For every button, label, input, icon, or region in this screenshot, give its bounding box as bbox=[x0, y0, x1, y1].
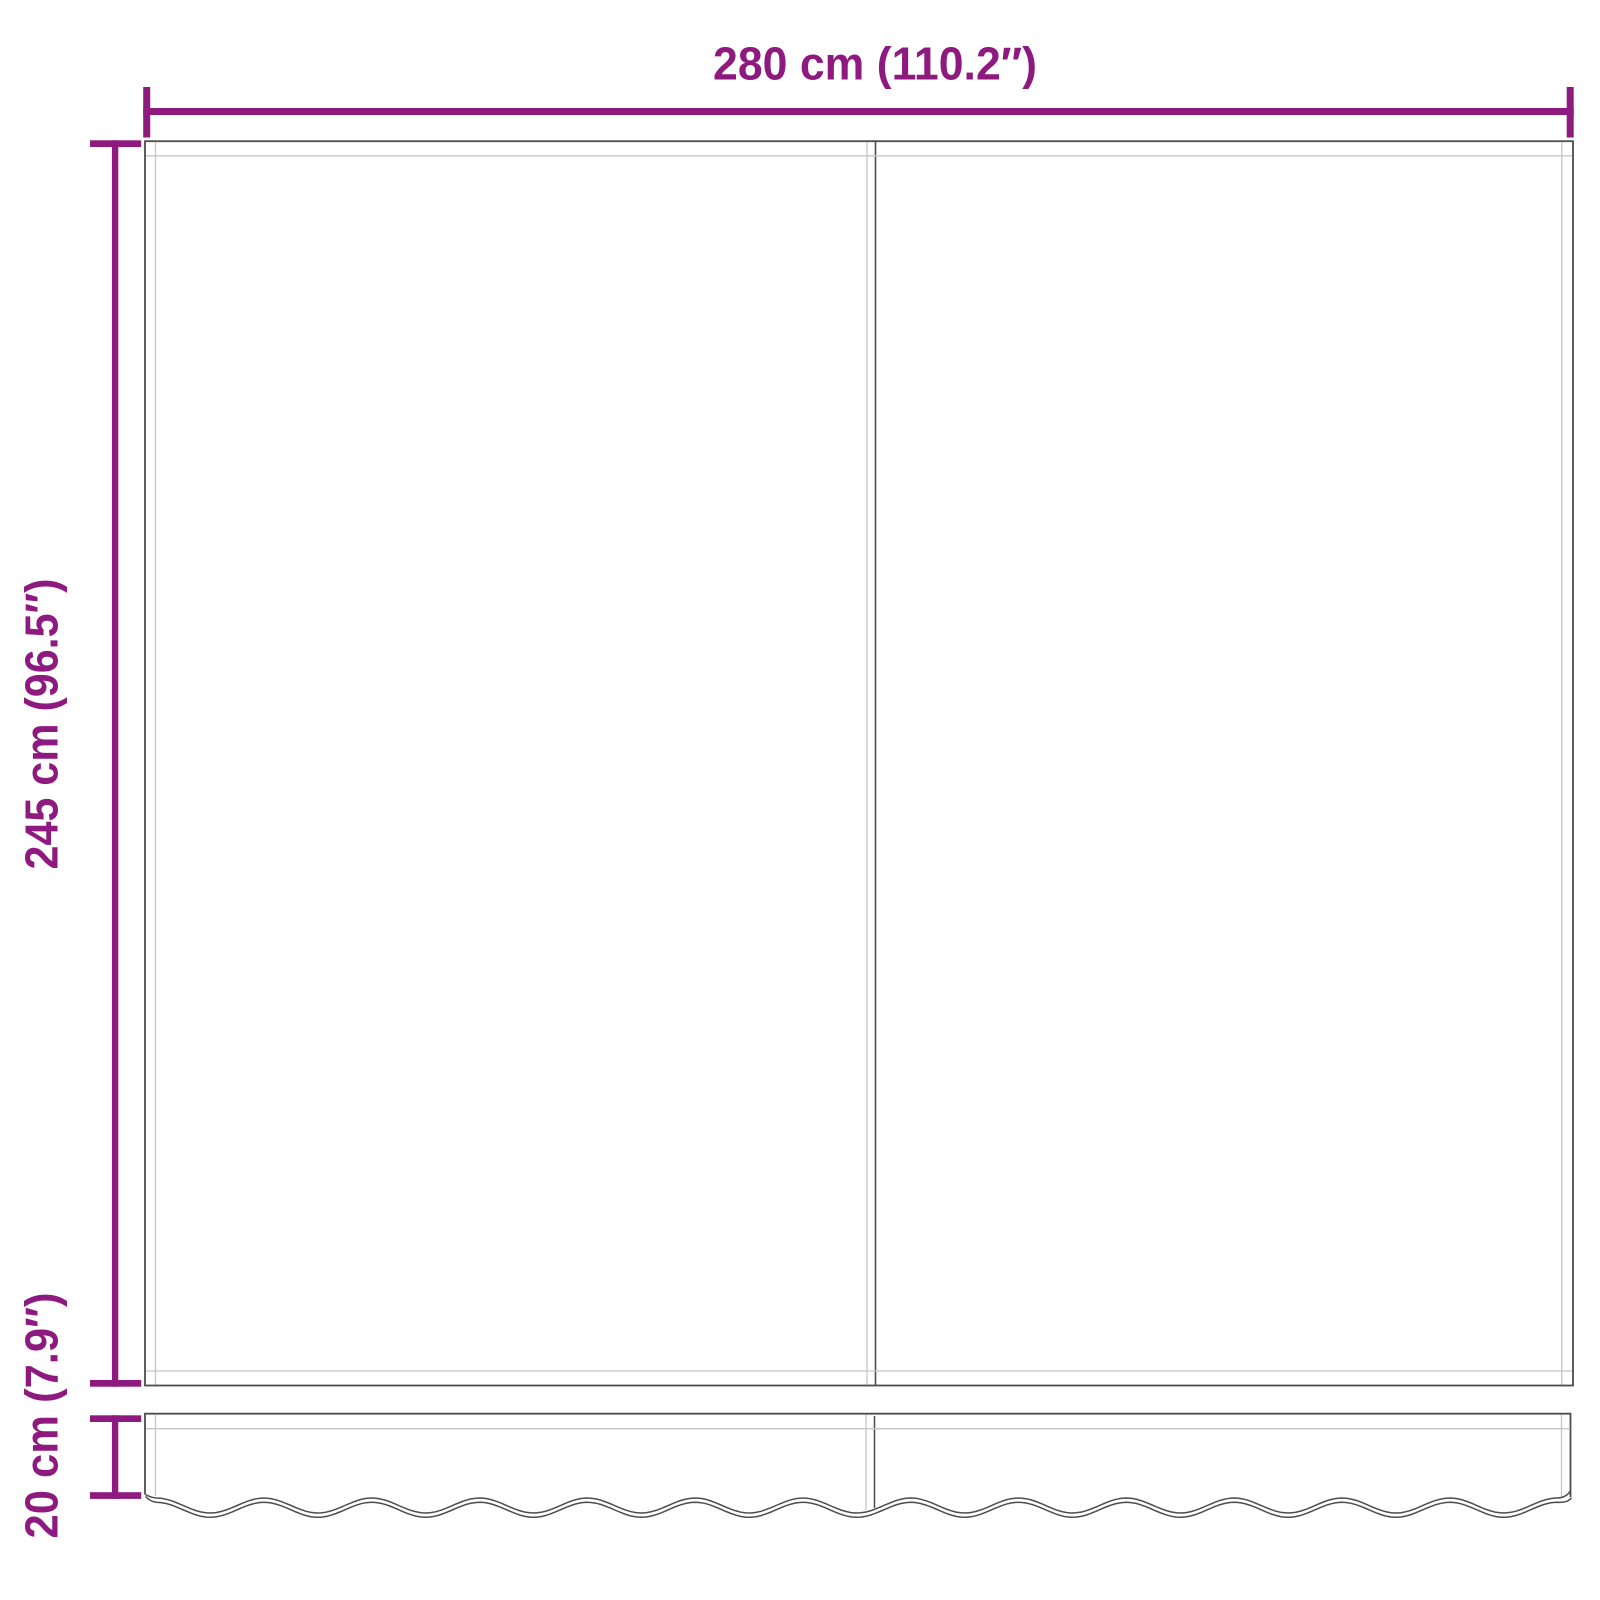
svg-text:245 cm (96.5″): 245 cm (96.5″) bbox=[16, 579, 68, 870]
svg-text:280 cm (110.2″): 280 cm (110.2″) bbox=[713, 37, 1037, 89]
svg-text:20 cm (7.9″): 20 cm (7.9″) bbox=[16, 1293, 68, 1539]
